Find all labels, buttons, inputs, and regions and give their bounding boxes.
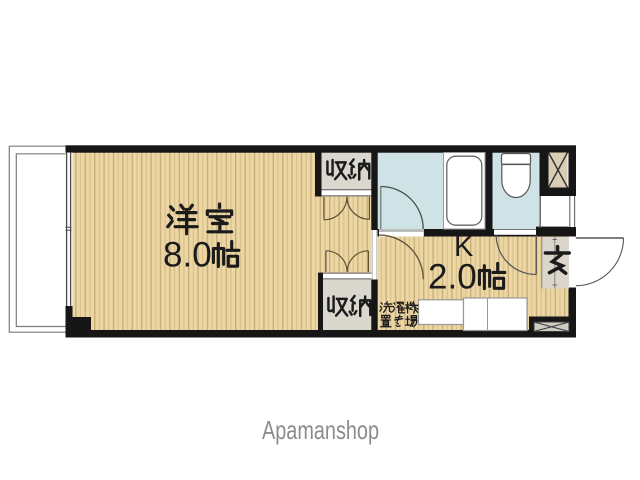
svg-text:2.0: 2.0 bbox=[428, 258, 477, 297]
svg-text:Apamanshop: Apamanshop bbox=[262, 415, 379, 445]
svg-text:8.0: 8.0 bbox=[163, 236, 212, 275]
